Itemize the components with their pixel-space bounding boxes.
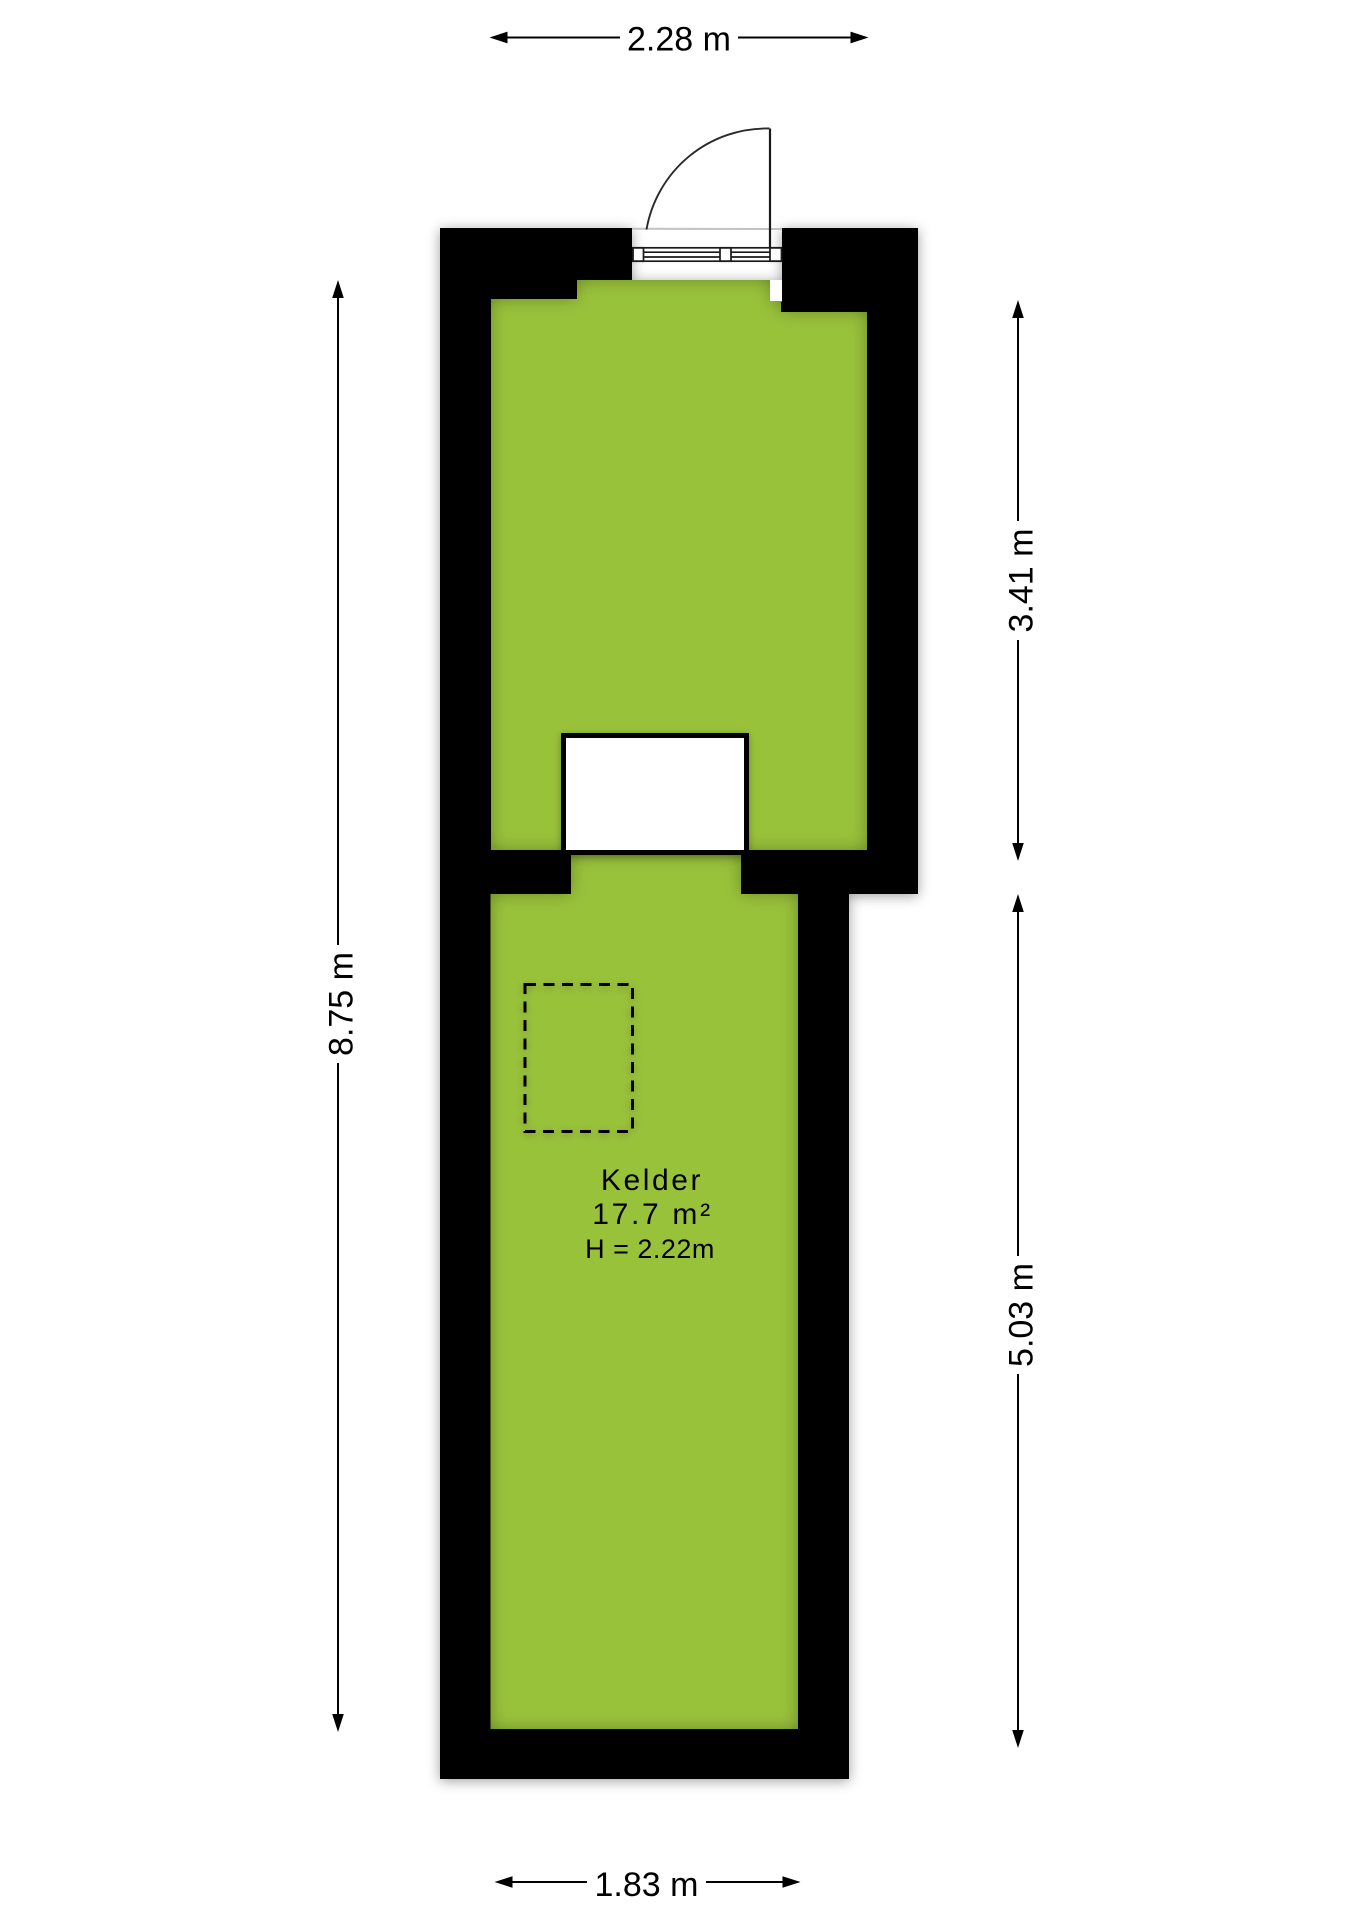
svg-text:17.7 m²: 17.7 m²: [592, 1198, 713, 1231]
svg-text:5.03 m: 5.03 m: [1003, 1263, 1041, 1367]
svg-text:3.41 m: 3.41 m: [1003, 529, 1041, 633]
svg-text:1.83 m: 1.83 m: [595, 1866, 699, 1904]
svg-text:2.28 m: 2.28 m: [627, 21, 731, 59]
svg-text:Kelder: Kelder: [601, 1164, 703, 1197]
svg-text:8.75 m: 8.75 m: [323, 952, 361, 1056]
svg-text:H = 2.22m: H = 2.22m: [585, 1234, 715, 1264]
